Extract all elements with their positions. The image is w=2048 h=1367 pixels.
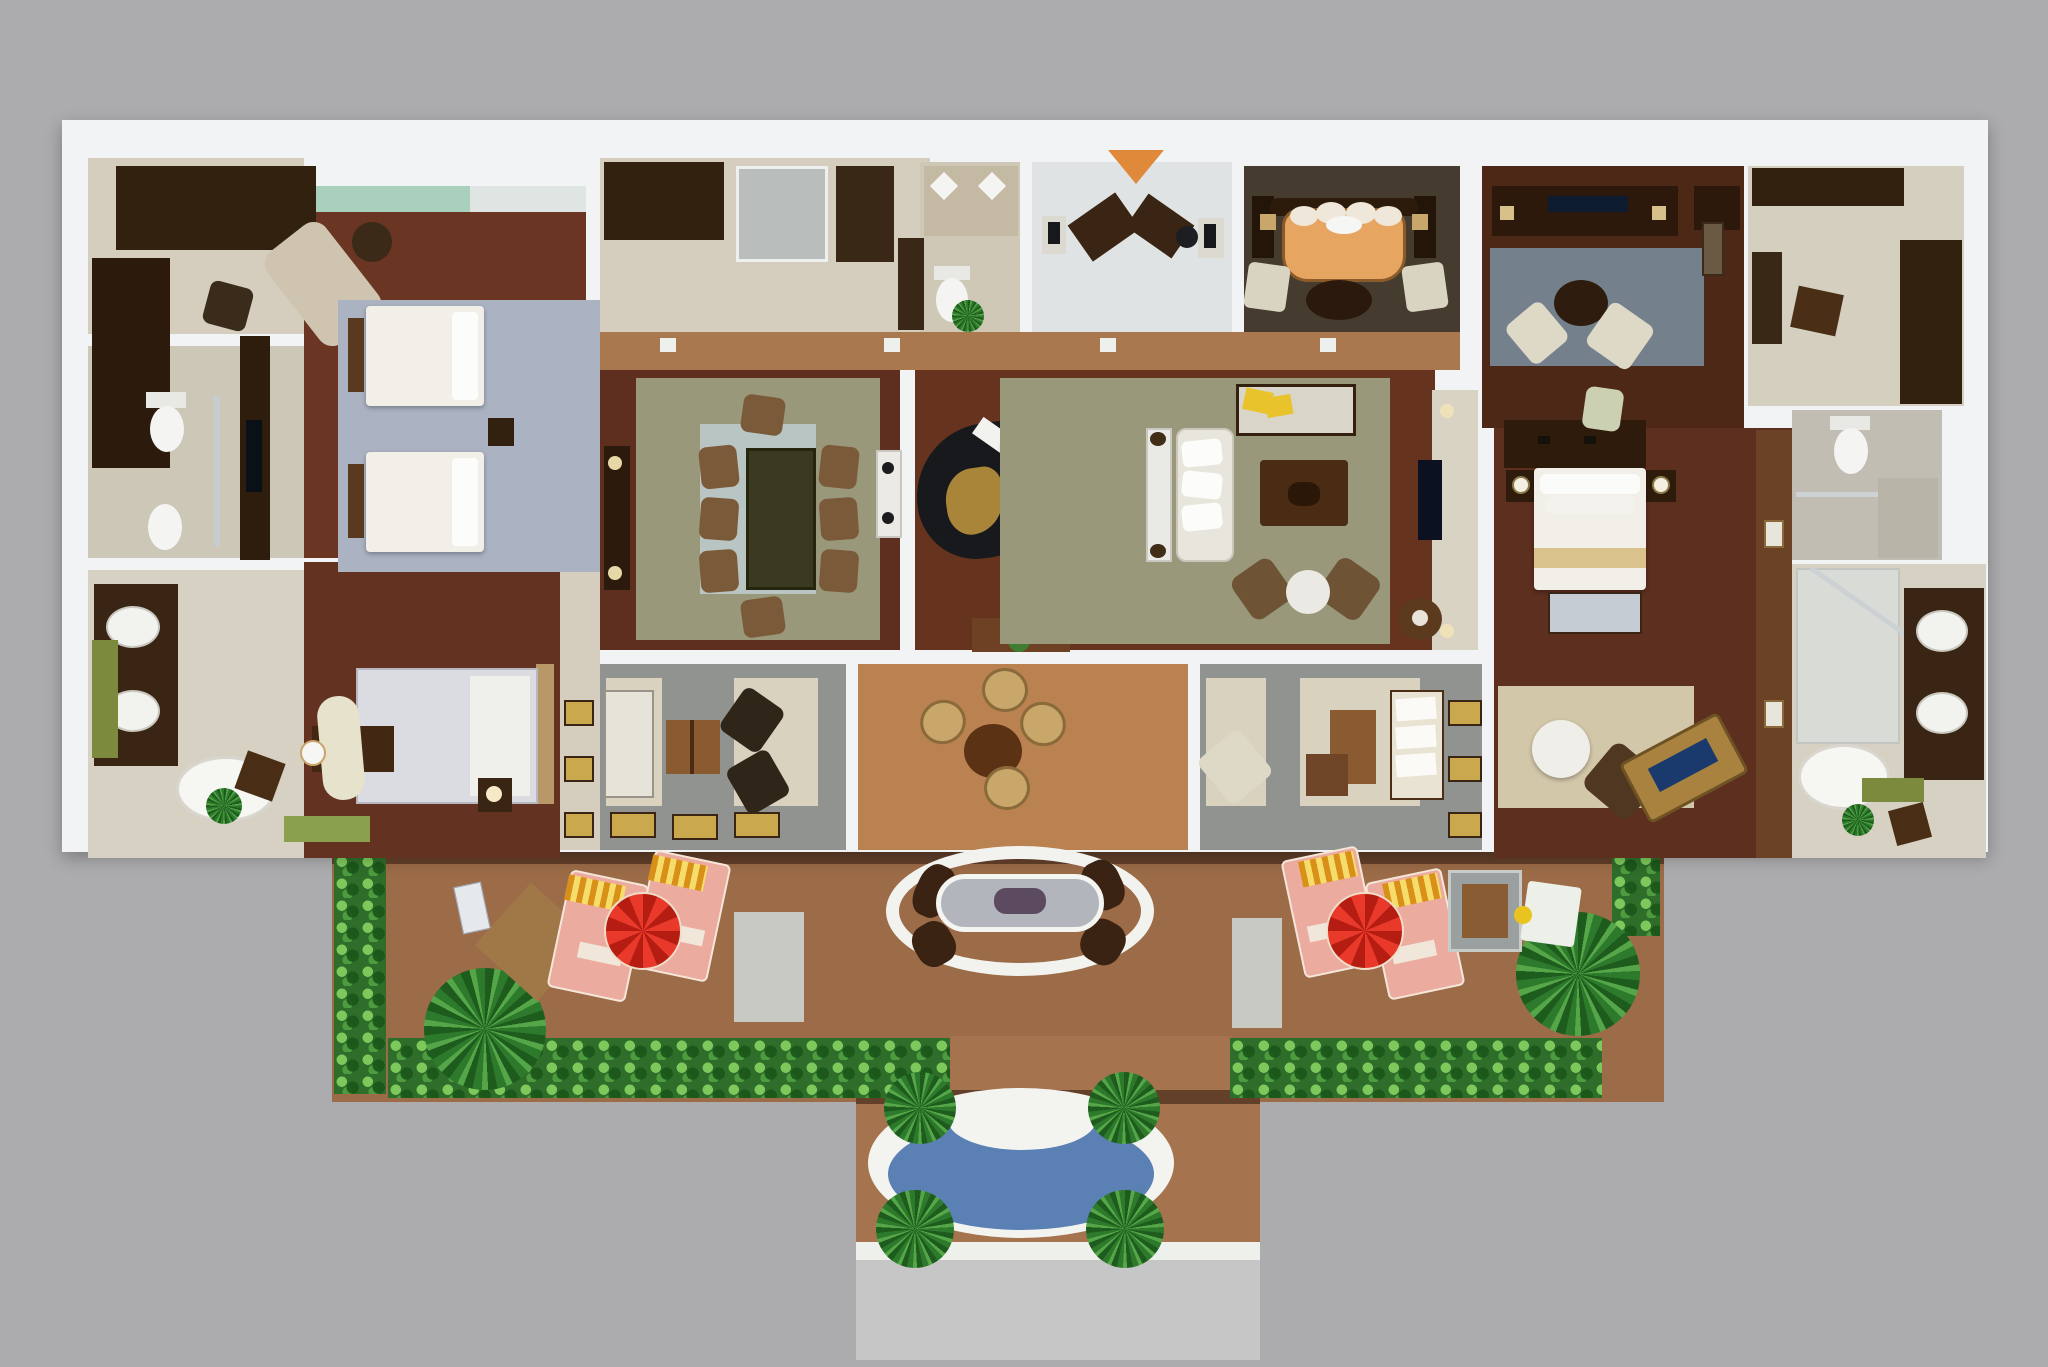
study-right-gold-mat-1 xyxy=(1448,700,1482,726)
entrance-arrow xyxy=(1108,150,1164,184)
dining-chair-6 xyxy=(819,549,860,594)
master-wall-frame-1 xyxy=(1764,520,1784,548)
corridor-gold-mat-1 xyxy=(564,700,594,726)
dining-chair-5 xyxy=(819,497,860,542)
living-sofa-pillow-1 xyxy=(1181,438,1223,468)
dining-divider-bowl-1 xyxy=(882,462,894,474)
living-console-leaf-2 xyxy=(1150,544,1166,558)
planter-square-wood xyxy=(1462,884,1508,938)
sitting-tv xyxy=(1548,196,1628,212)
entry-statue-left xyxy=(1048,222,1060,244)
wc-left-toilet xyxy=(150,406,184,452)
media-armchair-left xyxy=(1243,261,1291,312)
pergola-post-4 xyxy=(1320,338,1336,352)
living-sofa-pillow-2 xyxy=(1181,470,1223,500)
pool-plant-sw xyxy=(876,1190,954,1268)
guest-bed-2-pillow xyxy=(452,458,478,546)
hedge-bottom-right xyxy=(1230,1038,1602,1098)
study-right-pillow-2 xyxy=(1395,725,1436,750)
guest-nightstand xyxy=(488,418,514,446)
master-desk xyxy=(1504,420,1646,468)
media-oval-table xyxy=(1306,280,1372,320)
living-coffee-decor xyxy=(1288,482,1320,506)
steps-left-deck xyxy=(734,912,804,1022)
sitting-sconce-1 xyxy=(1500,206,1514,220)
corridor-closet-c xyxy=(898,238,924,330)
living-tv xyxy=(1418,460,1442,540)
pool-kidney-notch xyxy=(948,1090,1096,1150)
living-console-leaf-1 xyxy=(1150,432,1166,446)
study-right-side-desk xyxy=(1306,754,1348,796)
master-bed-gold-runner xyxy=(1534,548,1646,568)
dining-divider-bowl-2 xyxy=(882,512,894,524)
dressing-shelf-left xyxy=(1752,252,1782,344)
media-sofa-pillow-4 xyxy=(1374,206,1402,226)
media-sconce-left xyxy=(1260,214,1276,230)
dressing-wardrobe-right xyxy=(1900,240,1962,404)
bar-tray xyxy=(994,888,1046,914)
study-left-daybed xyxy=(604,690,654,798)
dining-console-lamp-2 xyxy=(608,566,622,580)
bedroom2-mirror xyxy=(300,740,326,766)
entry-black-pot xyxy=(1176,226,1198,248)
pool-apron xyxy=(856,1260,1260,1360)
media-armchair-right xyxy=(1401,261,1449,312)
master-wc-toilet xyxy=(1834,428,1868,474)
living-sofa-pillow-3 xyxy=(1181,502,1223,532)
living-side-table-top xyxy=(1412,610,1428,626)
study-right-pillow-1 xyxy=(1395,697,1436,722)
master-bath-plant xyxy=(1842,804,1874,836)
sitting-sconce-2 xyxy=(1652,206,1666,220)
master-bed-pillows-1 xyxy=(1540,474,1640,494)
wc-left-toilet-2 xyxy=(148,504,182,550)
master-bed-pillows-2 xyxy=(1546,496,1634,514)
sitting-wall-art xyxy=(1702,222,1724,276)
hedge-right-corner xyxy=(1612,852,1660,936)
master-bath-sink-2 xyxy=(1916,692,1968,734)
study-left-gold-mat-1 xyxy=(610,812,656,838)
dining-chair-head-top xyxy=(740,393,787,436)
pergola-post-3 xyxy=(1100,338,1116,352)
pergola-post-1 xyxy=(660,338,676,352)
master-lamp-right xyxy=(1652,476,1670,494)
media-sconce-right xyxy=(1412,214,1428,230)
dressing-wardrobe-top xyxy=(1752,168,1904,206)
master-pouf xyxy=(1532,720,1590,778)
steps-right-deck xyxy=(1232,918,1282,1028)
living-tv-light-1 xyxy=(1440,404,1454,418)
bath-left-green-mat xyxy=(92,640,118,758)
corridor-closet-b xyxy=(836,166,894,262)
corridor-gold-mat-2 xyxy=(564,756,594,782)
guest-bed-1-pillow xyxy=(452,312,478,400)
closet-cabinet-top-left xyxy=(116,166,316,250)
master-bed-bench xyxy=(1548,592,1642,634)
wc-left-glass xyxy=(214,396,220,546)
living-console-table xyxy=(1146,428,1172,562)
pool-plant-ne xyxy=(1088,1072,1160,1144)
study-left-gold-mat-3 xyxy=(734,812,780,838)
yellow-ball xyxy=(1514,906,1532,924)
guest-curtain-white xyxy=(470,186,586,212)
study-left-gold-mat-2 xyxy=(672,814,718,840)
umbrella-left xyxy=(604,892,682,970)
dining-chair-1 xyxy=(698,444,740,490)
dining-table xyxy=(746,448,816,590)
bath-left-plant xyxy=(206,788,242,824)
dining-chair-4 xyxy=(818,444,860,490)
powder-plant xyxy=(952,300,984,332)
study-right-gold-mat-2 xyxy=(1448,756,1482,782)
master-wood-feature-wall xyxy=(1756,430,1792,858)
study-left-table-split xyxy=(690,720,694,774)
master-desk-item-1 xyxy=(1538,436,1550,444)
pool-plant-se xyxy=(1086,1190,1164,1268)
floor-plan xyxy=(0,0,2048,1367)
master-desk-chair xyxy=(1581,386,1624,433)
guest-side-pouf xyxy=(352,222,392,262)
corridor-gold-mat-3 xyxy=(564,812,594,838)
master-wc-shower-floor xyxy=(1878,478,1938,558)
master-lamp-left xyxy=(1512,476,1530,494)
living-ottoman xyxy=(1286,570,1330,614)
bedroom2-headboard xyxy=(536,664,554,804)
dining-console-lamp-1 xyxy=(608,456,622,470)
media-sofa-pillow-1 xyxy=(1290,206,1318,226)
master-bath-sink-1 xyxy=(1916,610,1968,652)
master-bath-green-mat xyxy=(1862,778,1924,802)
corridor-shower-box xyxy=(736,166,828,262)
guest-bed-1-bench xyxy=(348,318,364,392)
study-right-gold-mat-3 xyxy=(1448,812,1482,838)
umbrella-right xyxy=(1326,892,1404,970)
guest-tv xyxy=(246,420,262,492)
corridor-closet-a xyxy=(604,162,724,240)
pool-plant-nw xyxy=(884,1072,956,1144)
bedroom2-lamp xyxy=(486,786,502,802)
master-wall-frame-2 xyxy=(1764,700,1784,728)
study-right-pillow-3 xyxy=(1395,753,1436,778)
pergola-post-2 xyxy=(884,338,900,352)
guest-bed-2-bench xyxy=(348,464,364,538)
master-desk-item-2 xyxy=(1584,436,1596,444)
hedge-left-column xyxy=(334,854,386,1094)
entry-statue-right xyxy=(1204,224,1216,248)
dining-chair-head-bottom xyxy=(740,595,787,638)
media-sofa-bowl xyxy=(1326,216,1362,234)
dining-chair-2 xyxy=(699,497,740,542)
bedroom2-green-rug xyxy=(284,816,370,842)
dining-chair-3 xyxy=(699,549,740,594)
living-tv-light-2 xyxy=(1440,624,1454,638)
